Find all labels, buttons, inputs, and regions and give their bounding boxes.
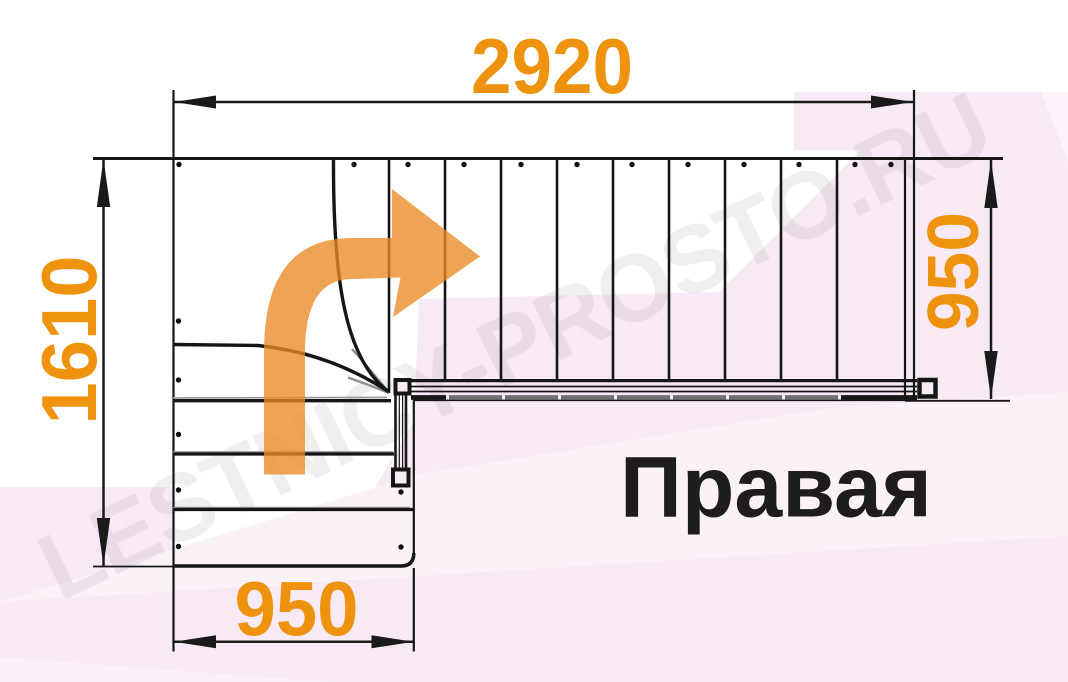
svg-text:950: 950 xyxy=(235,567,359,653)
svg-text:Правая: Правая xyxy=(620,440,932,536)
svg-text:2920: 2920 xyxy=(471,22,633,110)
svg-text:1610: 1610 xyxy=(25,256,113,425)
svg-text:950: 950 xyxy=(914,212,994,331)
